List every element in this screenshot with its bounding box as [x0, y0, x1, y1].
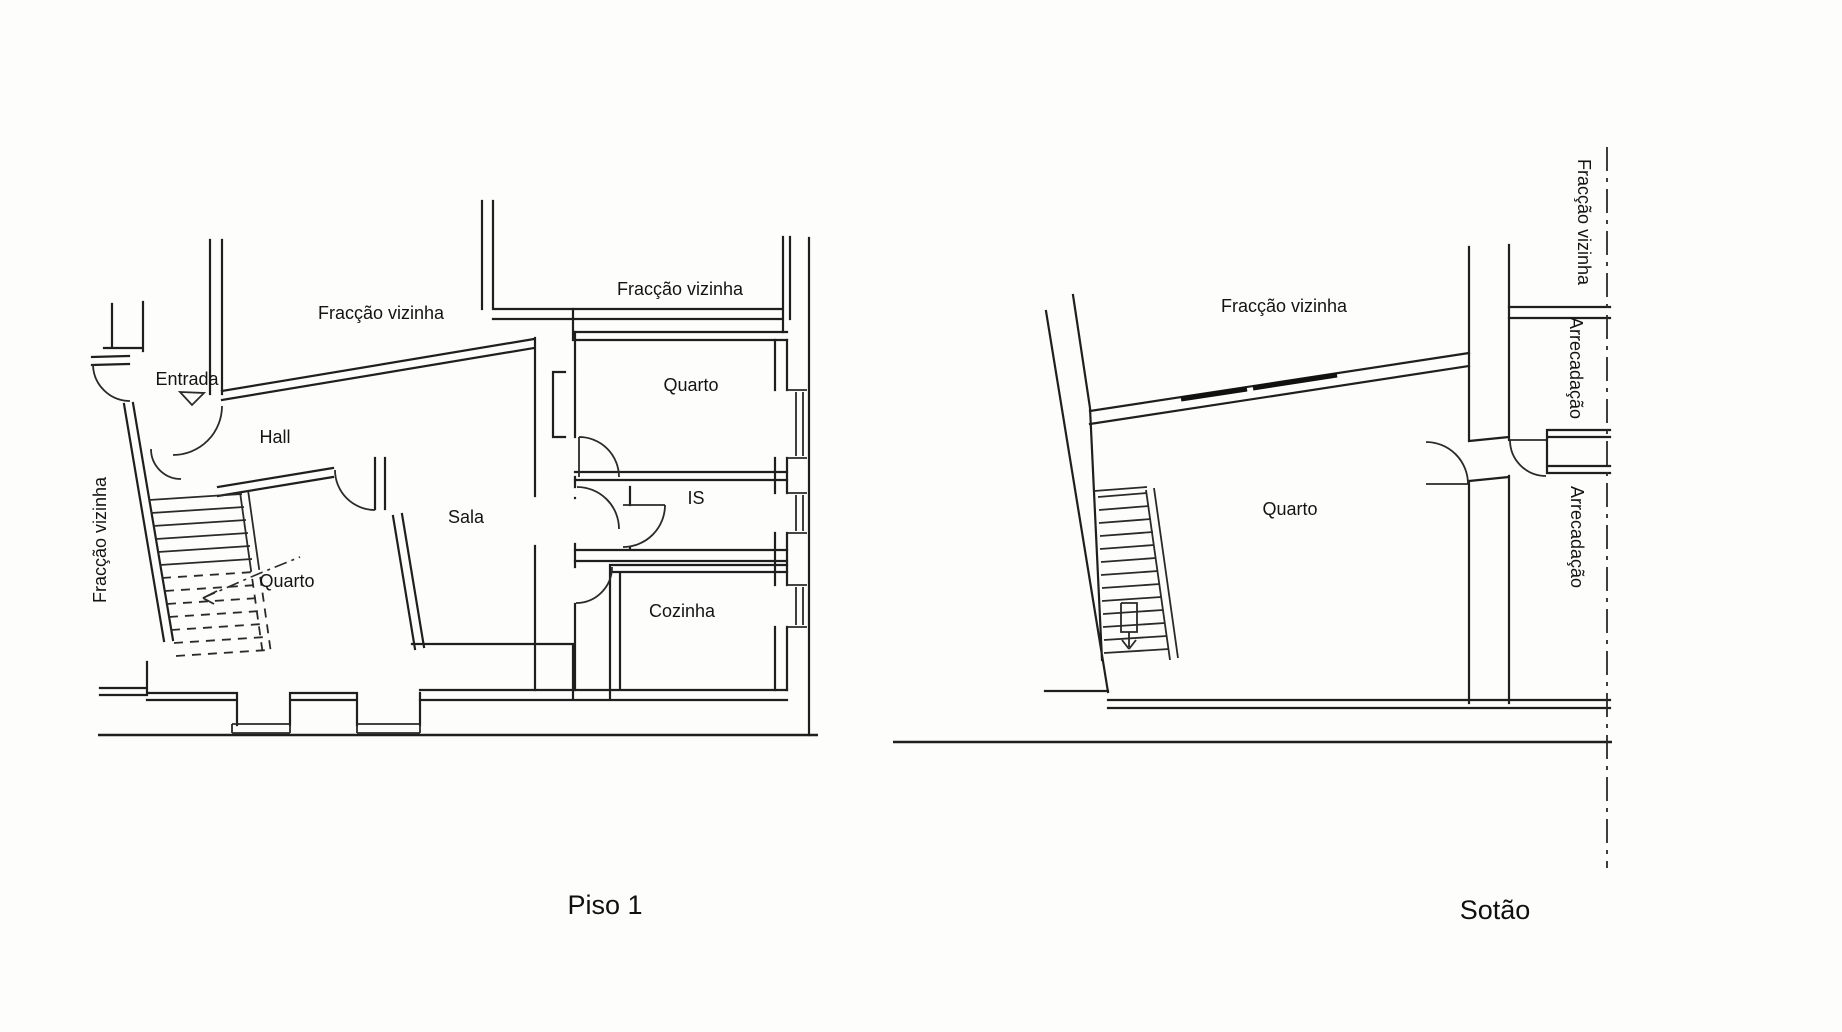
piso1-label-is: IS: [687, 488, 704, 508]
sotao-label-arrecadacao-top: Arrecadação: [1566, 317, 1586, 419]
piso1-plan-drawing: Fracção vizinha Fracção vizinha Fracção …: [90, 201, 818, 920]
piso1-label-fraccao-vizinha-top-right: Fracção vizinha: [617, 279, 744, 299]
piso1-bottom-facade: [100, 662, 420, 725]
piso1-entrance-walls: [92, 240, 222, 641]
sotao-plan-drawing: Fracção vizinha Fracção vizinha Arrecada…: [893, 147, 1612, 925]
sotao-door-arcs: [1426, 440, 1546, 484]
piso1-title-label: Piso 1: [567, 890, 642, 920]
scanned-floor-plan-page: Fracção vizinha Fracção vizinha Fracção …: [0, 0, 1842, 1032]
piso1-central-wall: [535, 332, 575, 690]
piso1-label-hall: Hall: [259, 427, 290, 447]
piso1-quarto-sala-wall: [393, 514, 424, 649]
sotao-left-wall: [1046, 295, 1108, 692]
sotao-title-label: Sotão: [1460, 895, 1531, 925]
piso1-label-fraccao-vizinha-top: Fracção vizinha: [318, 303, 445, 323]
sotao-right-walls: [1509, 307, 1610, 473]
sotao-diagonal-wall: [1090, 353, 1469, 424]
piso1-label-entrada: Entrada: [155, 369, 219, 389]
piso1-label-quarto-right: Quarto: [663, 375, 718, 395]
sotao-label-quarto: Quarto: [1262, 499, 1317, 519]
sotao-wall-smudges: [1181, 375, 1337, 399]
floor-plans-svg: Fracção vizinha Fracção vizinha Fracção …: [0, 0, 1842, 1032]
piso1-right-facade: [775, 340, 787, 690]
sotao-label-arrecadacao-bottom: Arrecadação: [1567, 486, 1587, 588]
piso1-quarto-left-door-arc: [335, 470, 375, 510]
sotao-label-fraccao-vizinha-top: Fracção vizinha: [1221, 296, 1348, 316]
piso1-label-fraccao-vizinha-left: Fracção vizinha: [90, 476, 110, 603]
piso1-stairs-treads: [149, 494, 252, 565]
sotao-bottom-wall: [1045, 691, 1610, 708]
piso1-hall-quarto-wall: [218, 458, 385, 509]
piso1-label-cozinha: Cozinha: [649, 601, 716, 621]
piso1-label-quarto-left: Quarto: [259, 571, 314, 591]
piso1-stairs-rail: [240, 490, 258, 563]
piso1-bottom-sills: [232, 724, 420, 733]
piso1-stairs-treads-dashed: [162, 572, 268, 656]
piso1-entrada-arrow-icon: [180, 392, 204, 405]
sotao-central-wall: [1469, 245, 1509, 703]
piso1-window-sills: [787, 390, 807, 627]
piso1-diagonal-wall: [222, 339, 534, 400]
sotao-label-fraccao-vizinha-right: Fracção vizinha: [1574, 159, 1594, 286]
sotao-stairs-rail: [1094, 487, 1178, 660]
piso1-label-sala: Sala: [448, 507, 485, 527]
piso1-right-rooms-walls: [412, 309, 787, 700]
